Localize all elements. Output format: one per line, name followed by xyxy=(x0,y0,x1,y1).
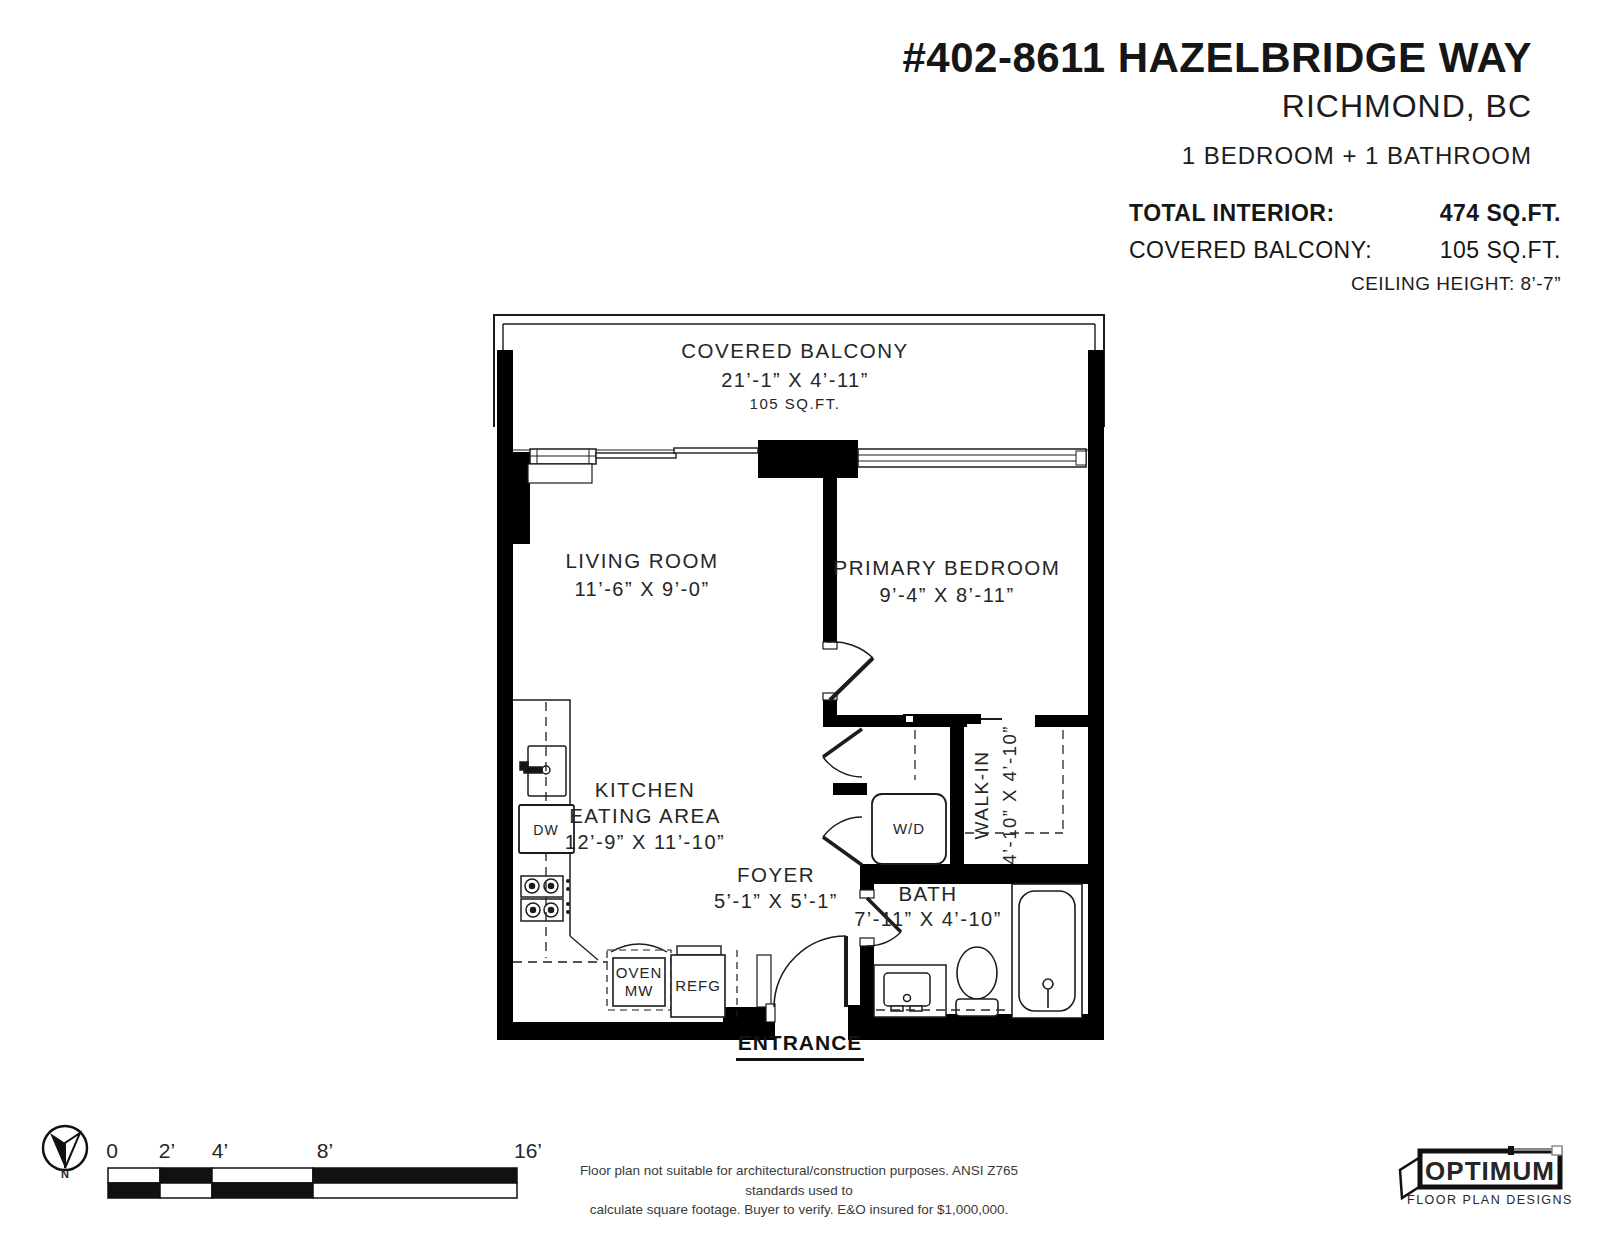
walk-in-sliding-door xyxy=(903,714,1002,724)
balcony-dims: 21’-1” X 4’-11” xyxy=(721,369,869,391)
walk-in-dims: 4’-10” X 4’-10” xyxy=(999,725,1020,865)
washer-dryer: W/D xyxy=(872,794,946,864)
compass-n-label: N xyxy=(61,1168,69,1180)
kitchen-label-line2: EATING AREA xyxy=(569,804,721,827)
bath-dims: 7’-11” X 4’-10” xyxy=(854,908,1002,930)
city-subtitle: RICHMOND, BC xyxy=(1282,88,1532,125)
total-interior-row: TOTAL INTERIOR: 474 SQ.FT. xyxy=(1129,200,1561,227)
covered-balcony-value: 105 SQ.FT. xyxy=(1440,237,1561,264)
total-interior-value: 474 SQ.FT. xyxy=(1440,200,1561,227)
disclaimer-line2: calculate square footage. Buyer to verif… xyxy=(558,1200,1040,1220)
primary-bedroom-label: PRIMARY BEDROOM xyxy=(834,556,1061,579)
scale-label-8: 8’ xyxy=(317,1139,333,1162)
bed-bath-config: 1 BEDROOM + 1 BATHROOM xyxy=(1182,142,1532,170)
logo-name: OPTIMUM xyxy=(1425,1156,1555,1186)
entrance-door xyxy=(774,936,846,1007)
covered-balcony-label: COVERED BALCONY: xyxy=(1129,237,1372,264)
bedroom-window xyxy=(858,449,1086,467)
entrance-label: ENTRANCE xyxy=(736,1031,865,1061)
microwave-label: MW xyxy=(625,982,654,999)
covered-balcony-row: COVERED BALCONY: 105 SQ.FT. xyxy=(1129,237,1561,264)
foyer-label: FOYER xyxy=(737,863,815,886)
door-jamb-caps xyxy=(757,642,874,1022)
walk-in-label: WALK-IN xyxy=(971,751,992,840)
bath-label: BATH xyxy=(898,882,957,905)
toilet xyxy=(956,947,998,1016)
oven-microwave: OVEN MW xyxy=(607,944,671,1010)
oven-label: OVEN xyxy=(616,964,663,981)
bathtub xyxy=(1012,884,1082,1018)
total-interior-label: TOTAL INTERIOR: xyxy=(1129,200,1335,227)
primary-bedroom-dims: 9’-4” X 8’-11” xyxy=(879,584,1014,606)
disclaimer-line1: Floor plan not suitable for architectura… xyxy=(558,1161,1040,1200)
kitchen-label-line1: KITCHEN xyxy=(595,778,695,801)
area-stats: TOTAL INTERIOR: 474 SQ.FT. COVERED BALCO… xyxy=(1129,200,1561,264)
balcony-area: 105 SQ.FT. xyxy=(750,395,841,412)
logo-tagline: FLOOR PLAN DESIGNS xyxy=(1407,1193,1572,1207)
north-compass-icon: N xyxy=(36,1122,94,1184)
logo-tape-icon xyxy=(1508,1146,1514,1155)
scale-label-2: 2’ xyxy=(159,1139,175,1162)
scale-label-16: 16’ xyxy=(514,1139,542,1162)
kitchen-sink xyxy=(520,746,566,796)
stove xyxy=(521,876,570,921)
laundry-closet-doors xyxy=(823,729,862,865)
living-room-label: LIVING ROOM xyxy=(565,549,718,572)
floor-plan-drawing: DW OVEN MW REFG W/D xyxy=(478,298,1118,1048)
ceiling-height: CEILING HEIGHT: 8’-7” xyxy=(1351,273,1561,295)
washer-dryer-label: W/D xyxy=(893,820,925,837)
fridge-label: REFG xyxy=(675,977,721,994)
scale-label-0: 0 xyxy=(106,1139,118,1162)
kitchen-dims: 12’-9” X 11’-10” xyxy=(565,831,725,853)
scale-bar-segments xyxy=(108,1168,517,1198)
scale-bar: 0 2’ 4’ 8’ 16’ xyxy=(96,1136,556,1208)
living-room-dims: 11’-6” X 9’-0” xyxy=(574,578,709,600)
bath-vanity xyxy=(874,965,946,1017)
disclaimer: Floor plan not suitable for architectura… xyxy=(558,1161,1040,1220)
bedroom-door xyxy=(827,642,873,700)
page-title: #402-8611 HAZELBRIDGE WAY xyxy=(902,34,1532,82)
balcony-label: COVERED BALCONY xyxy=(681,339,909,362)
living-room-window xyxy=(528,449,596,483)
foyer-dims: 5’-1” X 5’-1” xyxy=(714,890,838,912)
optimum-logo: OPTIMUM FLOOR PLAN DESIGNS xyxy=(1390,1138,1572,1212)
entrance-label-wrap: ENTRANCE xyxy=(700,1031,900,1061)
floor-plan-page: #402-8611 HAZELBRIDGE WAY RICHMOND, BC 1… xyxy=(0,0,1600,1237)
dishwasher-label: DW xyxy=(533,822,558,838)
scale-label-4: 4’ xyxy=(212,1139,228,1162)
